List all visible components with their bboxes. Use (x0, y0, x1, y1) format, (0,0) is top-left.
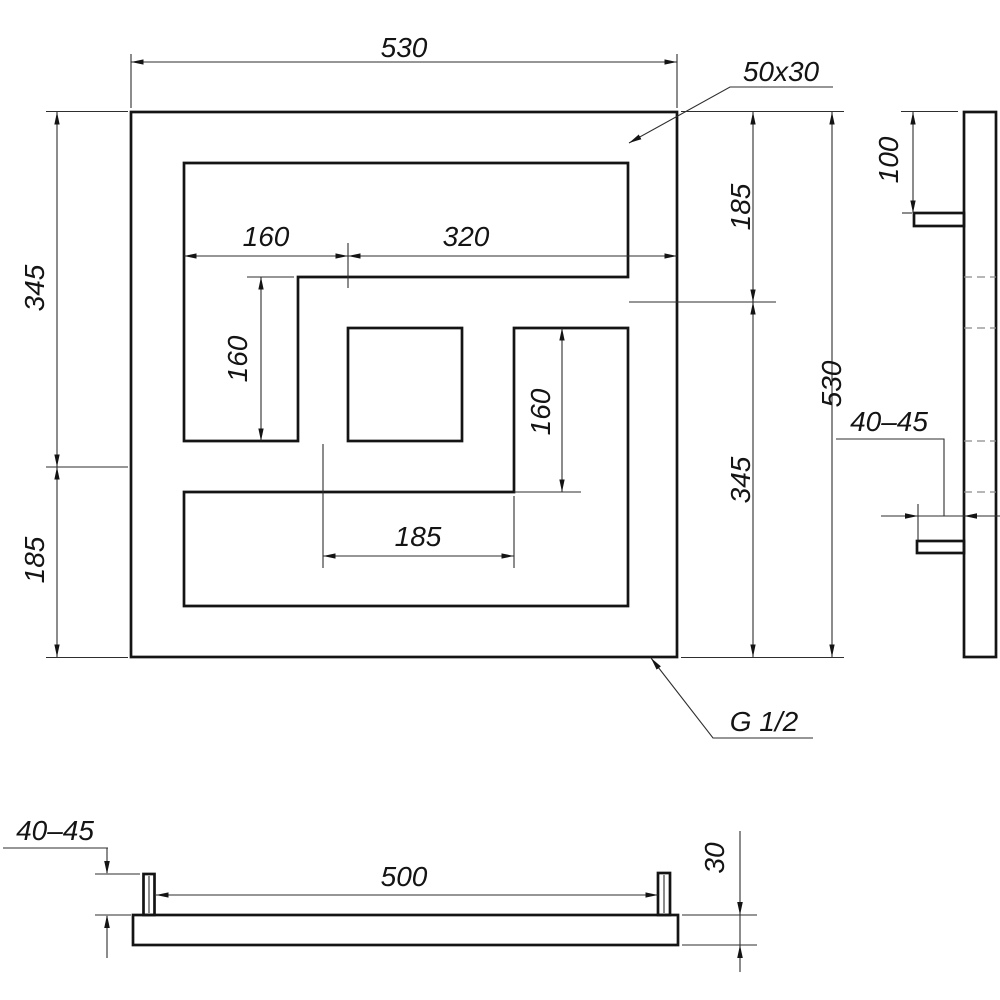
front-view: 530 50x30 160 320 160 160 185 345 185 18… (19, 32, 847, 738)
dim-160-right-vertical: 160 (525, 388, 556, 435)
dim-160-upper: 160 (243, 221, 290, 252)
dim-40-45-side: 40–45 (850, 406, 928, 437)
bottom-view: 40–45 500 30 (3, 815, 757, 972)
side-plate-outline (964, 112, 996, 657)
dim-160-left-vertical: 160 (222, 335, 253, 382)
bottom-plate-outline (133, 915, 678, 945)
maze-cutout-top-left (184, 163, 628, 441)
dim-40-45-bottom: 40–45 (16, 815, 94, 846)
front-plate-outline (131, 112, 677, 657)
dim-320-upper: 320 (443, 221, 490, 252)
side-dimension-lines (836, 112, 1000, 541)
dim-345-right: 345 (725, 456, 756, 503)
dim-185-right: 185 (725, 183, 756, 230)
maze-cutout-center-square (348, 328, 462, 441)
bottom-dimension-lines (3, 831, 757, 972)
towel-rail-drawing: 530 50x30 160 320 160 160 185 345 185 18… (0, 0, 1000, 1000)
dim-profile-50x30: 50x30 (743, 56, 820, 87)
dim-185-left: 185 (19, 536, 50, 583)
technical-drawing-sheet: 530 50x30 160 320 160 160 185 345 185 18… (0, 0, 1000, 1000)
dim-185-middle: 185 (395, 521, 442, 552)
dim-530-right: 530 (816, 360, 847, 407)
side-view: 100 40–45 (836, 112, 1000, 658)
leader-profile-50x30 (629, 87, 833, 143)
dim-530-top: 530 (381, 32, 428, 63)
dim-500-bottom: 500 (381, 861, 428, 892)
front-dimension-lines (57, 62, 832, 657)
side-bottom-connector-stub (917, 541, 964, 553)
front-extension-lines (46, 54, 844, 658)
dim-100-side: 100 (873, 136, 904, 183)
thread-label-g12: G 1/2 (730, 706, 799, 737)
dim-30-bottom: 30 (699, 842, 730, 874)
side-hidden-lines (964, 277, 996, 492)
dim-345-left: 345 (19, 264, 50, 311)
side-top-connector-stub (914, 213, 964, 226)
